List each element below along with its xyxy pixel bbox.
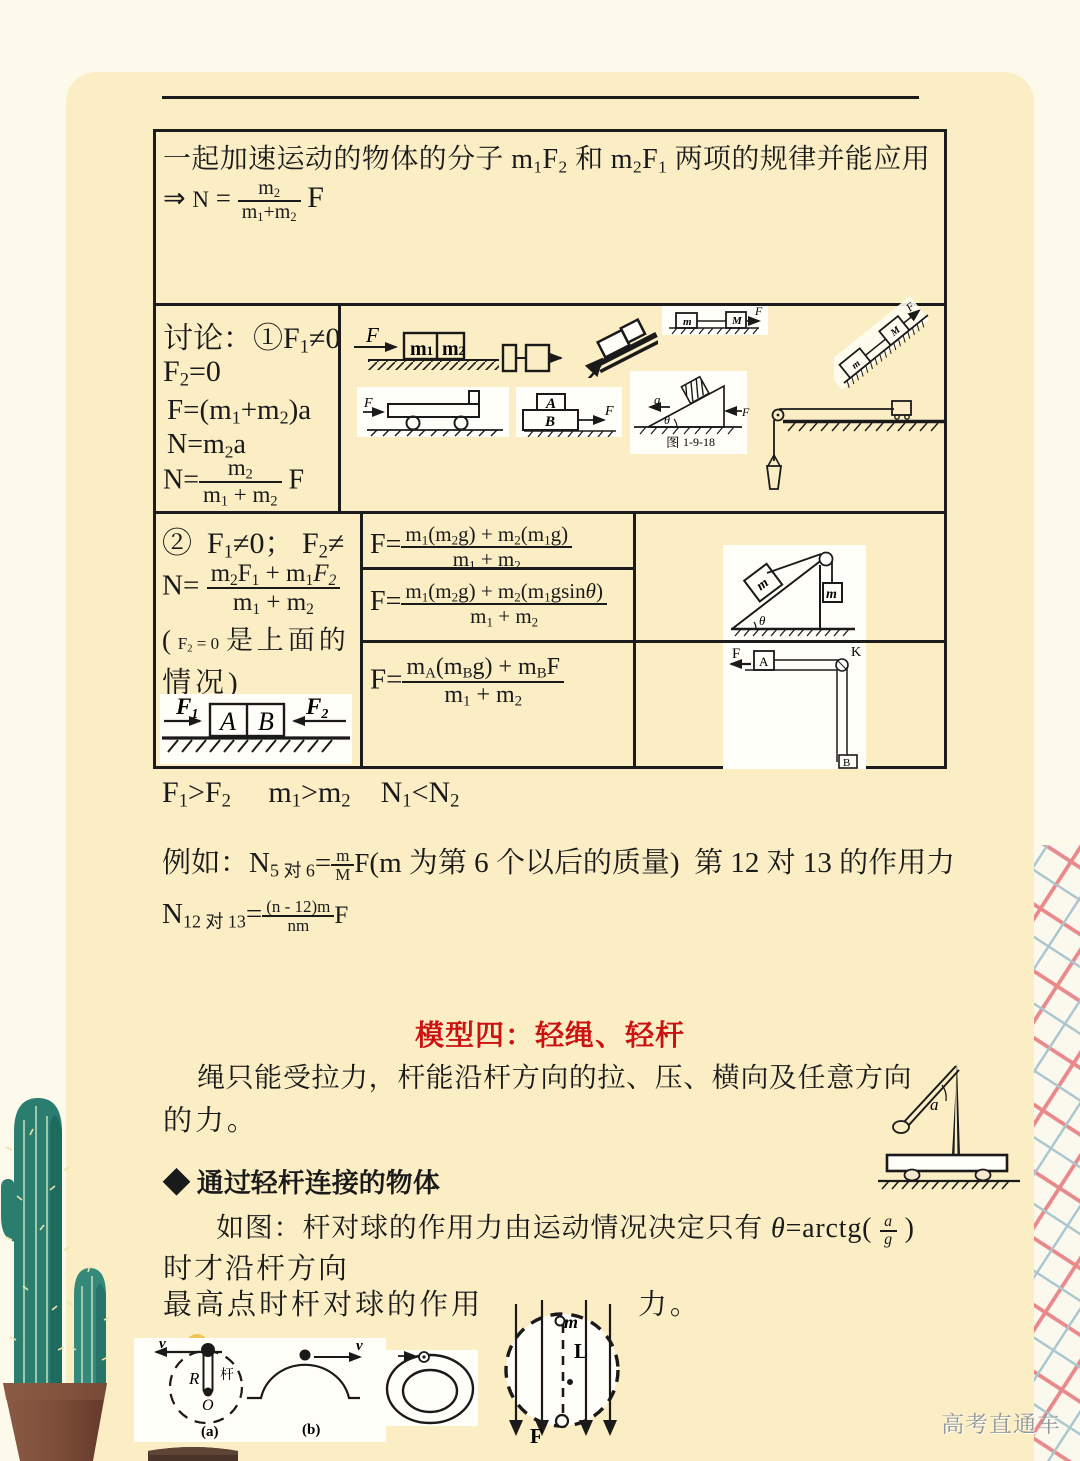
svg-text:K: K xyxy=(851,645,861,660)
svg-text:1-9-18: 1-9-18 xyxy=(683,435,715,449)
svg-text:θ: θ xyxy=(664,413,670,427)
svg-text:F: F xyxy=(604,404,614,419)
svg-text:(a): (a) xyxy=(201,1424,219,1440)
svg-text:m1: m1 xyxy=(410,338,433,360)
svg-text:L: L xyxy=(574,1339,588,1363)
svg-text:F: F xyxy=(754,306,763,318)
svg-text:图: 图 xyxy=(666,432,679,451)
svg-text:F: F xyxy=(732,646,740,662)
svg-text:A: A xyxy=(218,707,236,736)
svg-text:A: A xyxy=(759,654,769,669)
svg-text:F: F xyxy=(530,1424,543,1448)
svg-text:v: v xyxy=(356,1338,363,1354)
svg-text:A: A xyxy=(545,396,556,412)
svg-text:v: v xyxy=(159,1338,166,1352)
svg-text:θ: θ xyxy=(759,613,766,628)
svg-text:O: O xyxy=(202,1397,214,1414)
svg-text:M: M xyxy=(731,315,743,327)
svg-text:F: F xyxy=(741,405,750,419)
svg-text:F: F xyxy=(365,326,379,347)
svg-text:B: B xyxy=(843,757,850,769)
svg-text:a: a xyxy=(930,1095,939,1114)
svg-text:杆: 杆 xyxy=(220,1364,234,1384)
svg-text:m: m xyxy=(683,316,692,328)
svg-text:F: F xyxy=(363,396,373,411)
svg-text:(b): (b) xyxy=(302,1422,320,1438)
svg-text:B: B xyxy=(258,707,274,736)
svg-text:m: m xyxy=(564,1312,578,1332)
svg-text:m2: m2 xyxy=(442,338,465,360)
svg-text:B: B xyxy=(544,414,555,430)
svg-text:a: a xyxy=(654,392,661,407)
svg-text:R: R xyxy=(188,1369,200,1388)
svg-text:m: m xyxy=(826,587,837,602)
